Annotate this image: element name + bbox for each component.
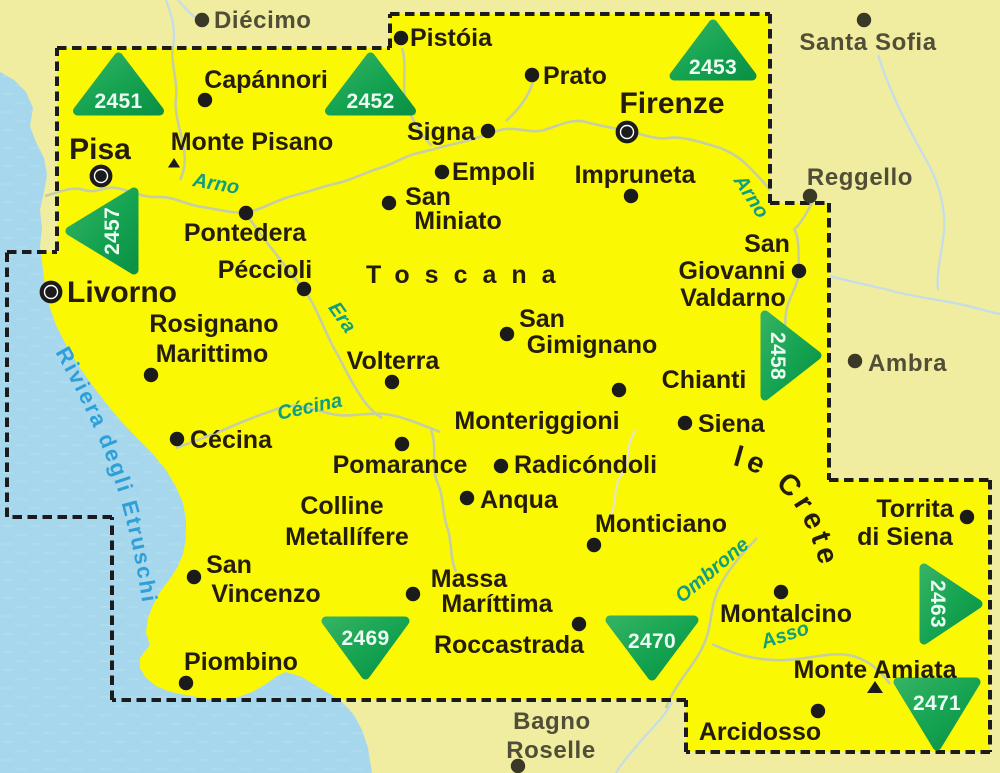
svg-text:Pisa: Pisa (69, 133, 131, 166)
svg-text:Ambra: Ambra (868, 350, 947, 377)
svg-text:2452: 2452 (347, 90, 395, 113)
svg-text:2470: 2470 (628, 630, 676, 653)
svg-text:Roselle: Roselle (506, 737, 596, 764)
svg-text:Toscana: Toscana (366, 261, 571, 289)
svg-text:Torrita: Torrita (876, 495, 954, 523)
svg-text:Radicóndoli: Radicóndoli (514, 451, 657, 479)
svg-text:Piombino: Piombino (184, 648, 298, 676)
svg-text:Colline: Colline (300, 492, 383, 520)
svg-text:Chianti: Chianti (662, 366, 747, 394)
svg-text:Vincenzo: Vincenzo (211, 580, 320, 608)
svg-text:Prato: Prato (543, 62, 607, 90)
svg-text:Gimignano: Gimignano (527, 331, 658, 359)
svg-text:Santa Sofia: Santa Sofia (799, 29, 936, 56)
svg-text:Giovanni: Giovanni (679, 257, 786, 285)
svg-text:2458: 2458 (766, 332, 789, 380)
svg-text:Firenze: Firenze (619, 87, 724, 120)
svg-text:Impruneta: Impruneta (575, 161, 697, 189)
svg-text:Maríttima: Maríttima (441, 590, 553, 618)
svg-text:San: San (744, 230, 790, 258)
svg-text:Rosignano: Rosignano (149, 310, 278, 338)
svg-text:2457: 2457 (101, 207, 124, 255)
svg-text:Arcidosso: Arcidosso (699, 718, 821, 746)
svg-text:2453: 2453 (689, 56, 737, 79)
svg-text:di Siena: di Siena (857, 523, 954, 551)
svg-text:2469: 2469 (342, 627, 390, 650)
svg-text:Empoli: Empoli (452, 158, 535, 186)
svg-text:Bagno: Bagno (513, 708, 591, 735)
svg-text:Péccioli: Péccioli (218, 256, 313, 284)
svg-text:Capánnori: Capánnori (204, 66, 328, 94)
svg-text:2463: 2463 (926, 580, 949, 628)
svg-text:Volterra: Volterra (347, 347, 441, 375)
svg-text:Livorno: Livorno (67, 276, 177, 309)
svg-text:Monte Amiata: Monte Amiata (794, 656, 958, 684)
svg-text:Reggello: Reggello (807, 164, 913, 191)
svg-text:Monticiano: Monticiano (595, 510, 727, 538)
svg-text:Miniato: Miniato (414, 207, 502, 235)
svg-text:Monteriggioni: Monteriggioni (454, 407, 619, 435)
svg-text:Pistóia: Pistóia (410, 24, 493, 52)
svg-text:Marittimo: Marittimo (156, 340, 269, 368)
svg-text:Valdarno: Valdarno (680, 284, 786, 312)
svg-text:Diécimo: Diécimo (214, 7, 312, 34)
svg-text:San: San (519, 305, 565, 333)
svg-text:2451: 2451 (95, 90, 143, 113)
svg-text:Metallífere: Metallífere (285, 523, 409, 551)
svg-text:Signa: Signa (407, 118, 476, 146)
svg-text:Siena: Siena (698, 410, 766, 438)
svg-text:2471: 2471 (913, 692, 961, 715)
svg-text:Anqua: Anqua (480, 486, 559, 514)
svg-text:San: San (206, 551, 252, 579)
svg-text:Pomarance: Pomarance (333, 451, 468, 479)
svg-text:Massa: Massa (431, 565, 509, 593)
svg-text:Monte Pisano: Monte Pisano (171, 128, 334, 156)
svg-text:Pontedera: Pontedera (184, 219, 307, 247)
svg-text:Roccastrada: Roccastrada (434, 631, 585, 659)
svg-text:Cécina: Cécina (190, 426, 273, 454)
